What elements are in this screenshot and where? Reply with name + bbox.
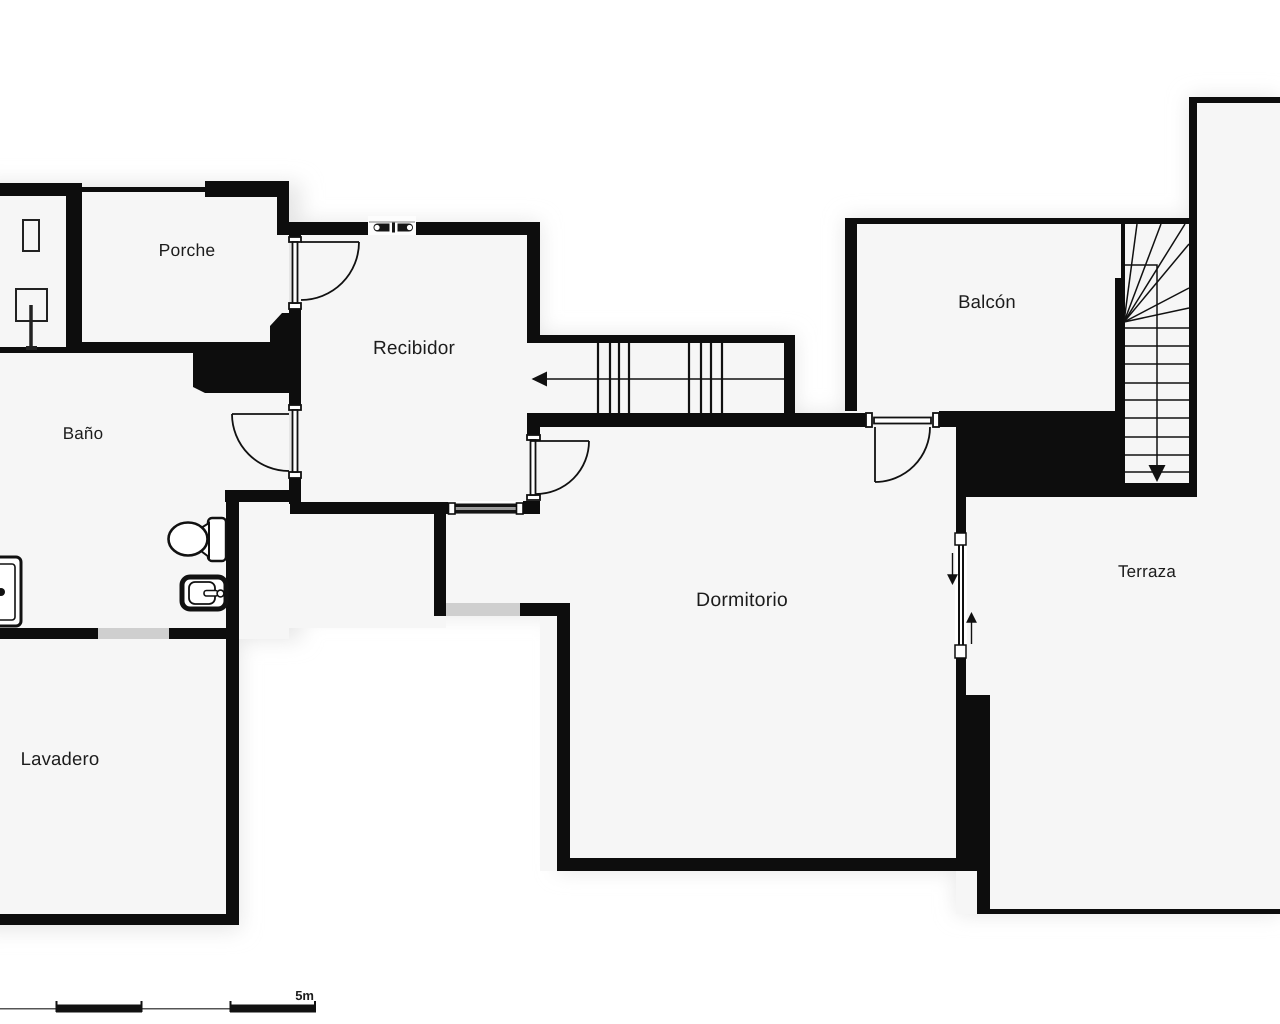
svg-text:Recibidor: Recibidor	[373, 338, 456, 359]
svg-text:Balcón: Balcón	[958, 291, 1016, 312]
svg-text:Terraza: Terraza	[1118, 562, 1176, 581]
svg-text:Porche: Porche	[159, 240, 216, 260]
svg-text:Lavadero: Lavadero	[21, 748, 100, 769]
svg-text:Baño: Baño	[63, 424, 104, 443]
svg-text:Dormitorio: Dormitorio	[696, 589, 788, 611]
svg-text:5m: 5m	[295, 988, 314, 1003]
